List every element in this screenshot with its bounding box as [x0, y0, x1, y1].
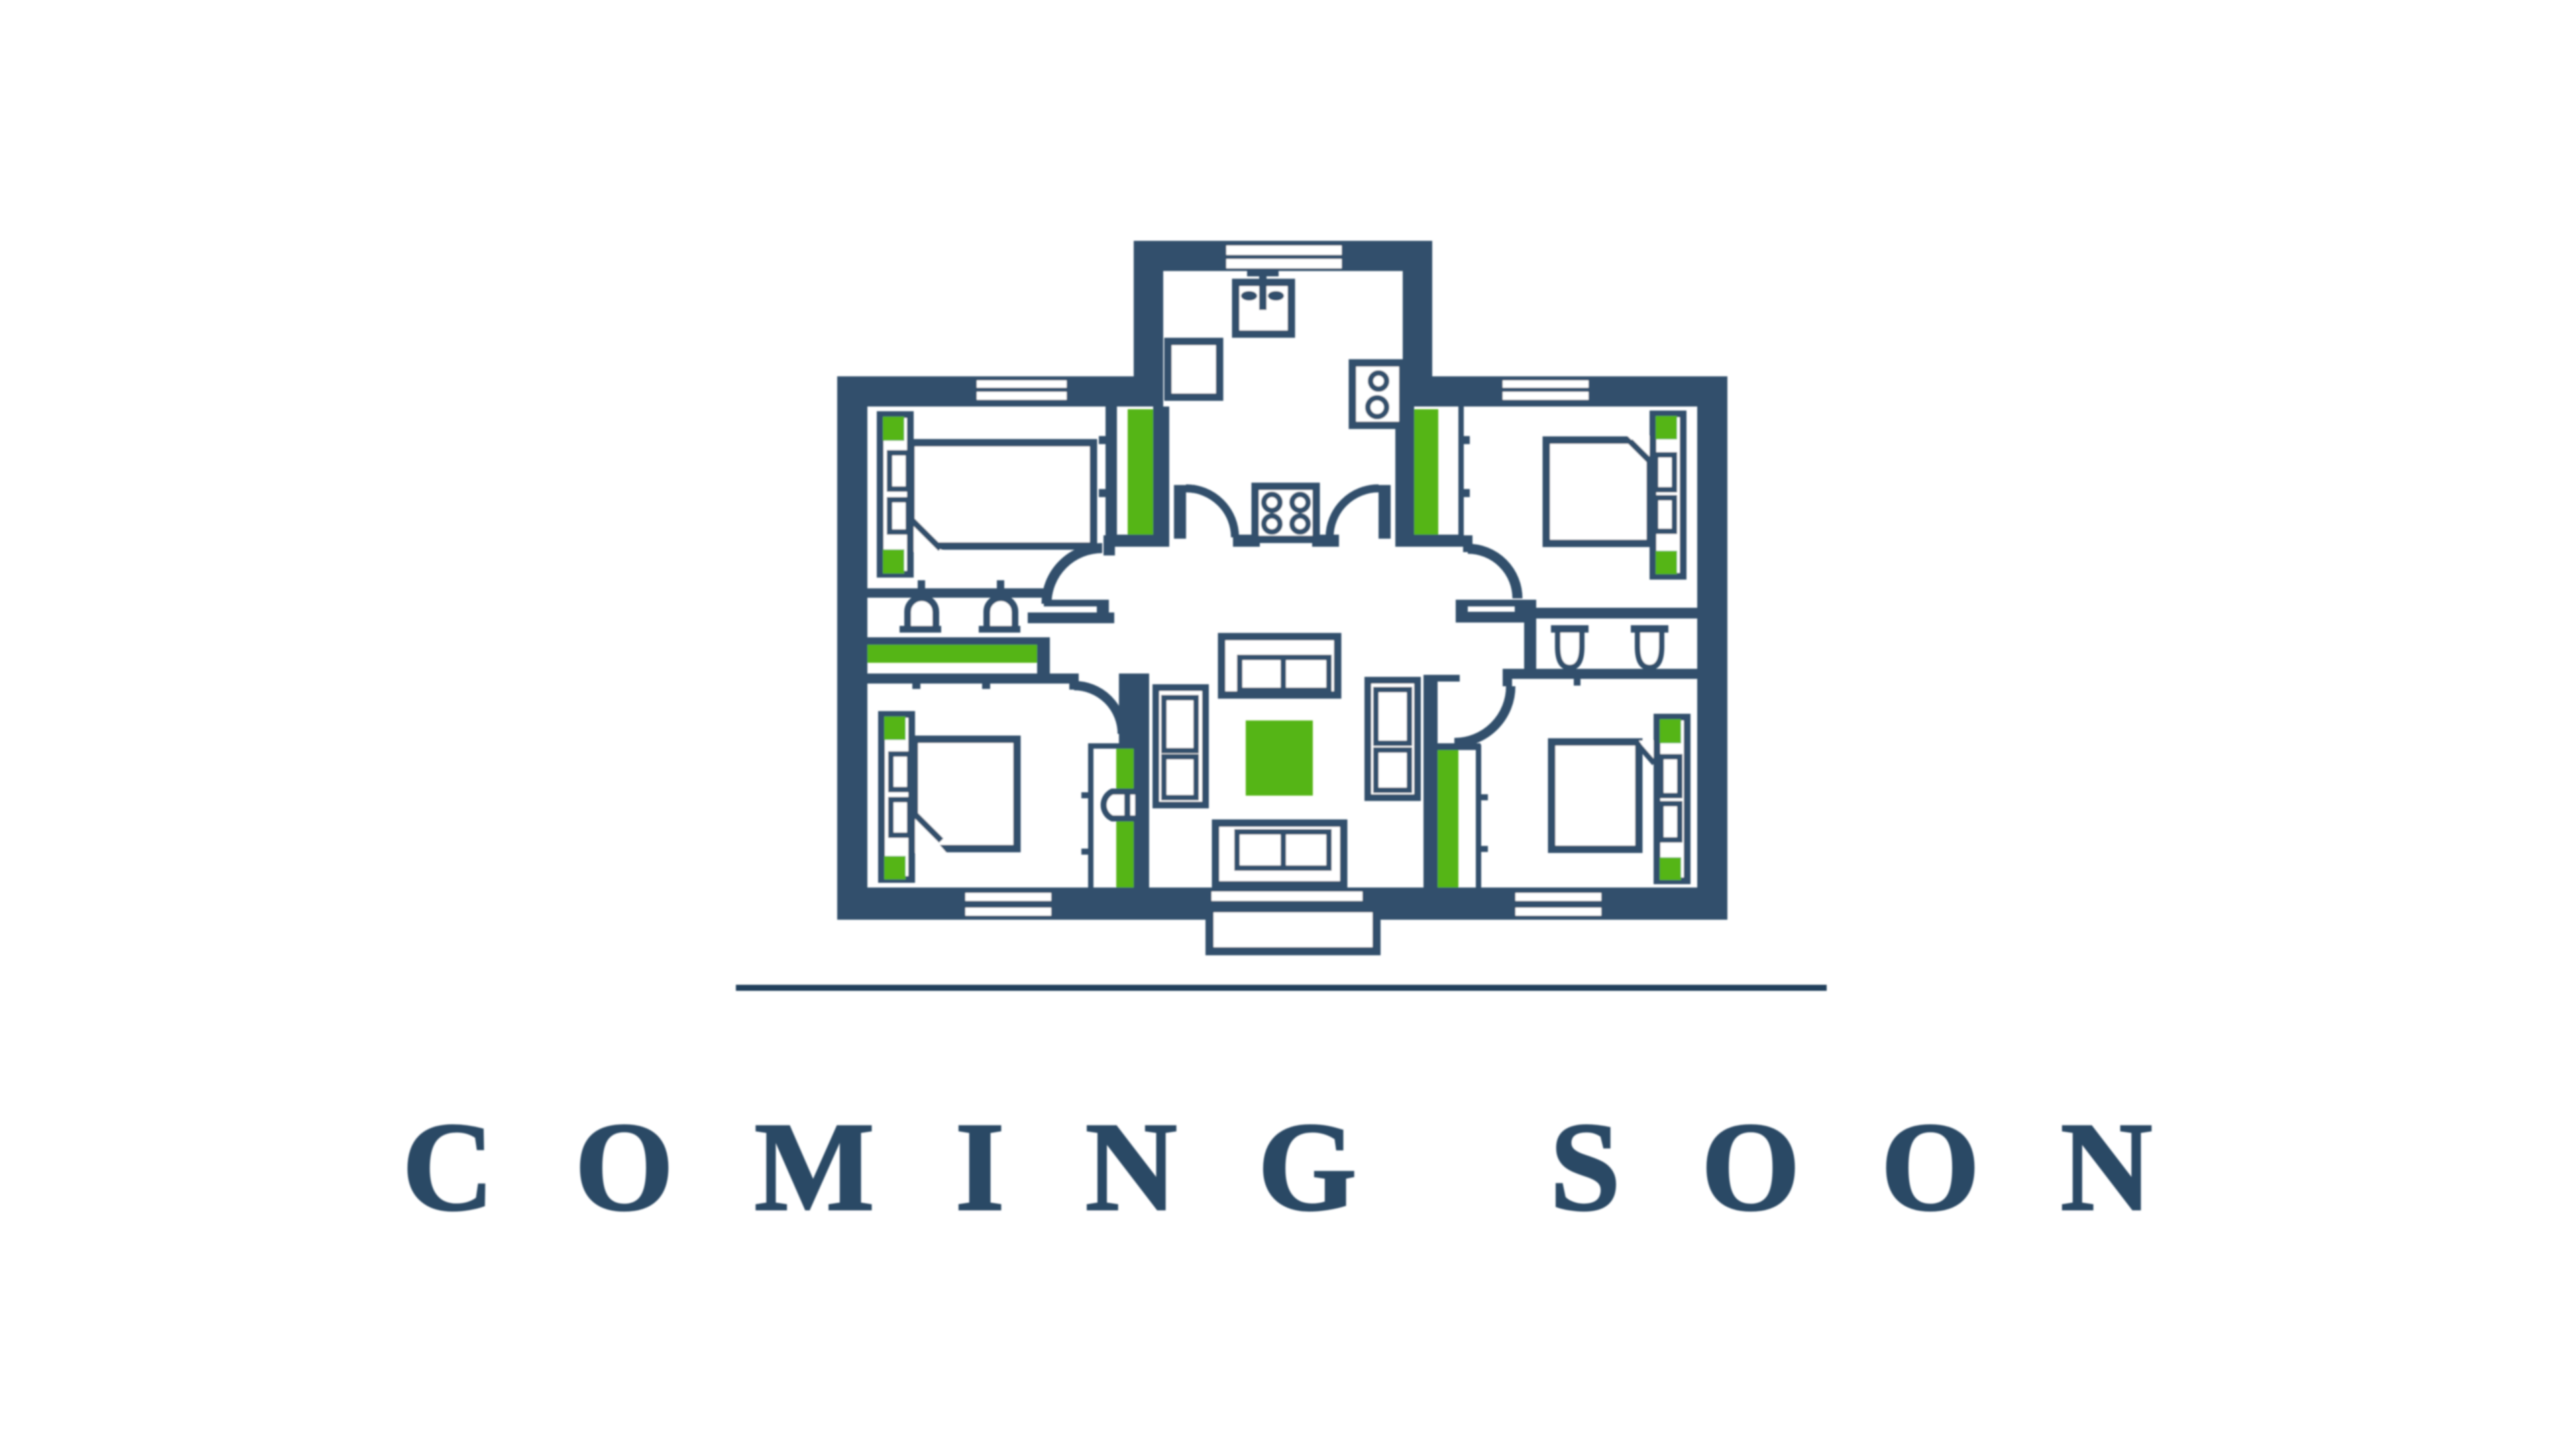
- svg-text:COMING SOON: COMING SOON: [402, 1097, 2233, 1238]
